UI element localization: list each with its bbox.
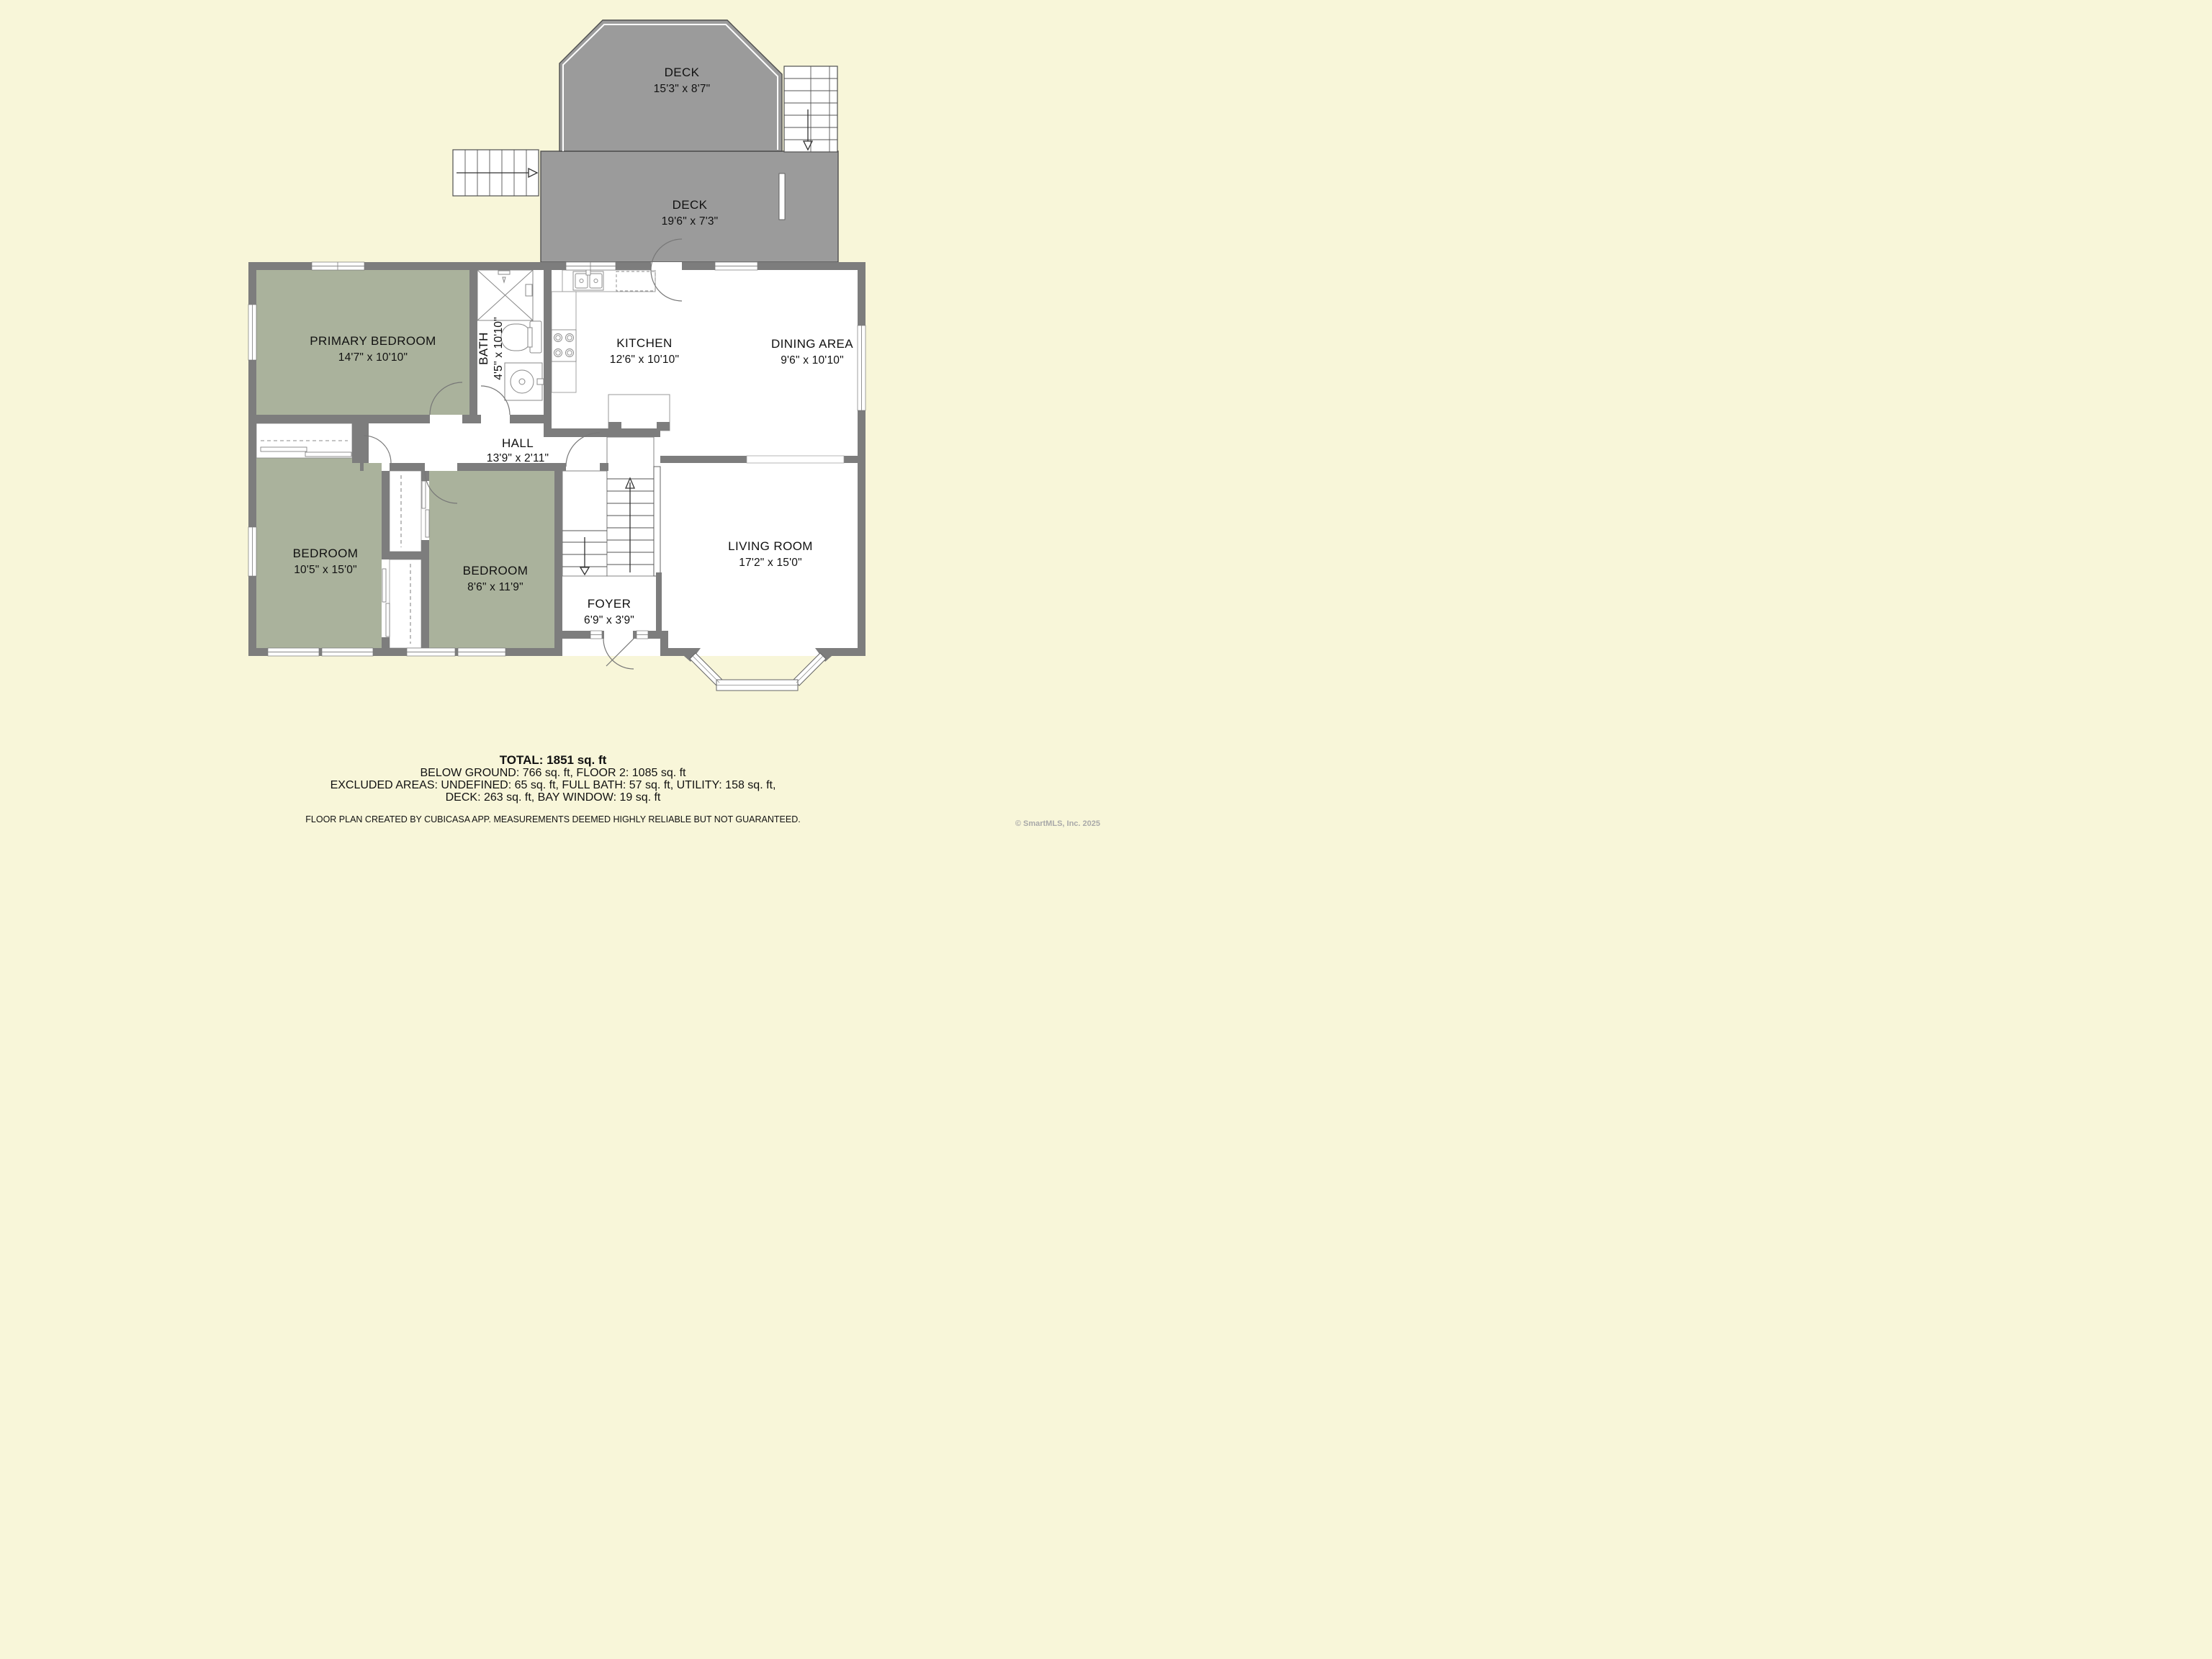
living-room-name: LIVING ROOM [728,539,813,553]
bedroom-middle-floor [429,471,554,648]
closet-bedroom-left-top [256,423,352,458]
bedroom-middle-dims: 8'6" x 11'9" [467,581,523,593]
deck-stairs-right [784,66,837,152]
primary-bedroom-dims: 14'7" x 10'10" [338,351,408,364]
kitchen-name: KITCHEN [616,336,672,350]
lower-deck-dims: 19'6" x 7'3" [662,215,719,228]
bedroom-left-name: BEDROOM [293,547,359,560]
upper-deck-dims: 15'3" x 8'7" [654,83,711,95]
primary-bedroom-name: PRIMARY BEDROOM [310,334,436,348]
shower [477,270,533,320]
stove [552,330,576,361]
bath-name: BATH [477,332,490,365]
summary-line2: BELOW GROUND: 766 sq. ft, FLOOR 2: 1085 … [0,767,1106,780]
copyright-notice: © SmartMLS, Inc. 2025 [1015,819,1100,828]
dining-area-dims: 9'6" x 10'10" [781,354,844,367]
summary-disclaimer: FLOOR PLAN CREATED BY CUBICASA APP. MEAS… [0,814,1106,824]
cased-opening [747,456,844,463]
hall-name: HALL [502,436,534,450]
kitchen-sink [573,269,603,290]
lower-deck-name: DECK [673,198,708,212]
upper-deck-name: DECK [665,66,700,79]
floor-plan-svg: DECK 15'3" x 8'7" DECK 19'6" x 7'3" PRIM… [0,0,1106,829]
kitchen-dims: 12'6" x 10'10" [610,354,679,366]
front-door-gap [604,631,633,639]
hall-dims: 13'9" x 2'11" [487,452,549,464]
deck-door-gap [651,262,682,270]
summary-total: TOTAL: 1851 sq. ft [0,753,1106,768]
stair-railing [654,467,660,576]
summary-line4: DECK: 263 sq. ft, BAY WINDOW: 19 sq. ft [0,791,1106,804]
foyer-dims: 6'9" x 3'9" [584,614,634,626]
bath-dims: 4'5" x 10'10" [493,317,505,380]
toilet [501,321,541,353]
deck-rail-stub [779,174,785,220]
dining-area-name: DINING AREA [771,337,853,351]
bathroom-sink [505,363,544,400]
summary-line3: EXCLUDED AREAS: UNDEFINED: 65 sq. ft, FU… [0,779,1106,792]
bedroom-middle-name: BEDROOM [463,564,529,577]
foyer-name: FOYER [588,597,631,611]
living-room-dims: 17'2" x 15'0" [739,557,802,569]
bedroom-left-dims: 10'5" x 15'0" [294,564,357,576]
stair-closet [562,471,607,531]
